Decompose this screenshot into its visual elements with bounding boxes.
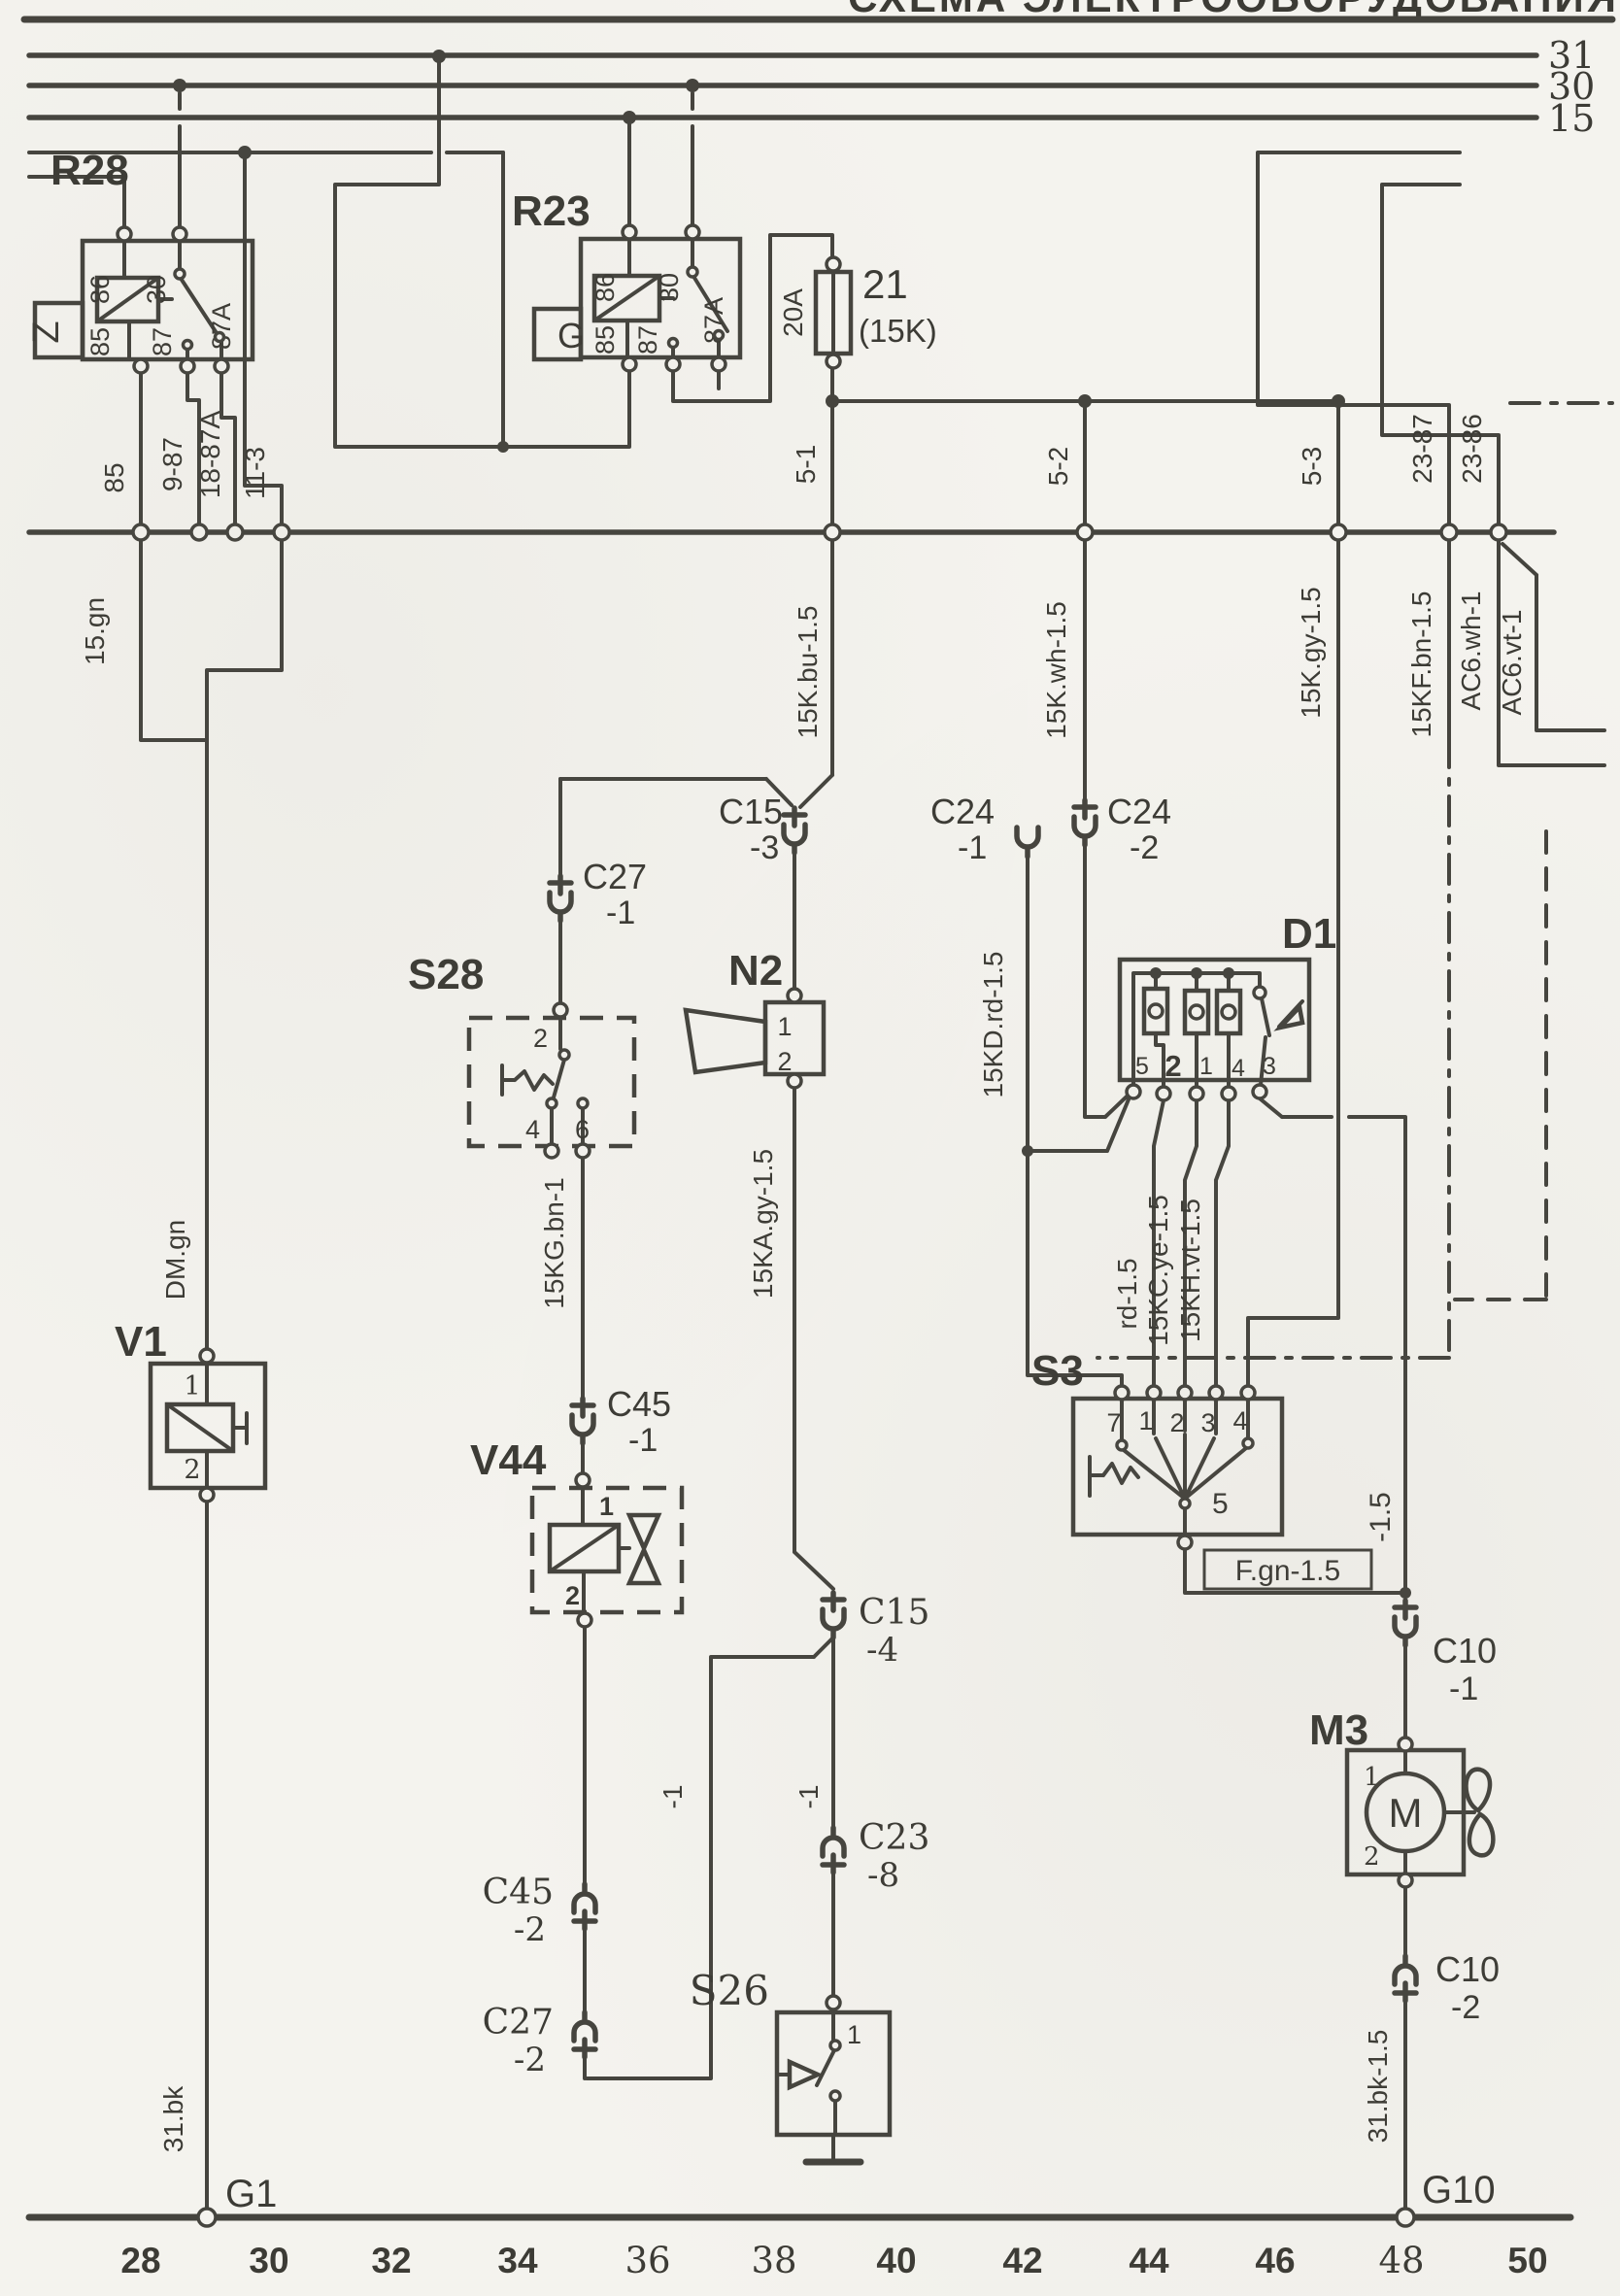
connector-c15-4 bbox=[823, 1593, 844, 1638]
connector-c45-2 bbox=[574, 1884, 595, 1929]
relay-r23: R23 G 86 30 85 87 87A bbox=[512, 187, 740, 359]
wire-rd: rd-1.5 bbox=[1112, 1258, 1142, 1329]
label-11-3: 11-3 bbox=[240, 447, 270, 499]
bus-lines: 31 30 15 bbox=[29, 34, 1595, 140]
scale-48: 48 bbox=[1378, 2240, 1424, 2281]
r23-label: R23 bbox=[512, 187, 591, 235]
r28-87: 87 bbox=[148, 327, 177, 356]
r28-86: 86 bbox=[85, 275, 115, 304]
r28-tag: Z bbox=[26, 321, 67, 343]
m3-motor-letter: M bbox=[1389, 1790, 1423, 1836]
d1-arrow-icon bbox=[1280, 1007, 1302, 1028]
relay-r28: R28 Z 86 30 85 87 87A bbox=[26, 147, 253, 359]
wire-dm-gn: DM.gn bbox=[160, 1220, 190, 1300]
fuse-21: 20A 21 (15K) bbox=[778, 261, 937, 354]
v1-2: 2 bbox=[184, 1455, 200, 1485]
label-23-86: 23-86 bbox=[1457, 414, 1487, 484]
c23-8-label: C23 bbox=[859, 1818, 929, 1858]
fgn-label-box: F.gn-1.5 bbox=[1204, 1550, 1371, 1589]
wire-neg-1-left: -1 bbox=[658, 1785, 688, 1809]
v44-1: 1 bbox=[599, 1492, 614, 1521]
v44-2: 2 bbox=[565, 1581, 580, 1610]
wire-fgn: F.gn-1.5 bbox=[1235, 1555, 1340, 1587]
scale-34: 34 bbox=[497, 2241, 538, 2280]
fuse-label: 21 bbox=[862, 261, 908, 307]
wire-labels: DM.gn 31.bk 31.bk-1.5 15KG.bn-1 15KA.gy-… bbox=[158, 952, 1397, 2153]
connector-c23-8 bbox=[823, 1828, 844, 1873]
c24-2-label: C24 bbox=[1107, 792, 1171, 831]
c10-1-label: C10 bbox=[1433, 1631, 1497, 1671]
m3-1: 1 bbox=[1364, 1763, 1380, 1792]
s28-2: 2 bbox=[533, 1024, 548, 1053]
s3-3: 3 bbox=[1200, 1408, 1215, 1437]
c45-2-pin: -2 bbox=[514, 1910, 546, 1949]
connector-c24-2 bbox=[1074, 800, 1096, 845]
d1-3: 3 bbox=[1263, 1053, 1276, 1080]
ground-rail: G1 G10 bbox=[29, 2169, 1570, 2226]
n2-box bbox=[765, 1002, 824, 1074]
wire-neg-1-right: -1 bbox=[793, 1785, 824, 1809]
connector-c10-1 bbox=[1395, 1601, 1416, 1645]
m3-label: M3 bbox=[1309, 1706, 1368, 1754]
g1-terminal bbox=[198, 2209, 216, 2226]
c15-4-pin: -4 bbox=[866, 1631, 898, 1670]
label-9-87: 9-87 bbox=[157, 437, 187, 491]
coordinate-scale: 28 30 32 34 36 38 40 42 44 46 48 50 bbox=[120, 2240, 1547, 2281]
wiring-diagram-page: СХЕМА ЭЛЕКТРООБОРУДОВАНИЯ 31 30 15 R28 Z… bbox=[0, 0, 1620, 2296]
wire-ac6-wh: AC6.wh-1 bbox=[1456, 591, 1486, 711]
c27-2-pin: -2 bbox=[514, 2041, 546, 2079]
schematic-canvas: СХЕМА ЭЛЕКТРООБОРУДОВАНИЯ 31 30 15 R28 Z… bbox=[0, 0, 1620, 2296]
connector-c15-3 bbox=[784, 808, 805, 853]
c45-2-label: C45 bbox=[483, 1873, 554, 1912]
wire-15k-wh: 15K.wh-1.5 bbox=[1041, 601, 1071, 739]
c15-4-label: C15 bbox=[859, 1593, 929, 1633]
switch-s28: S28 2 4 6 bbox=[408, 951, 634, 1146]
wire-31bk-15: 31.bk-1.5 bbox=[1363, 2030, 1393, 2144]
r23-86: 86 bbox=[591, 273, 620, 302]
d1-label: D1 bbox=[1282, 910, 1336, 958]
n2-horn-symbol bbox=[686, 1010, 765, 1072]
scale-42: 42 bbox=[1002, 2241, 1042, 2280]
d1-1: 1 bbox=[1199, 1053, 1213, 1080]
connector-c27-2 bbox=[574, 2012, 595, 2057]
s3-4: 4 bbox=[1232, 1406, 1247, 1435]
m3-2: 2 bbox=[1364, 1842, 1380, 1872]
c24-1-pin: -1 bbox=[958, 829, 987, 866]
fuse-sub-label: (15K) bbox=[859, 313, 937, 349]
label-5-3: 5-3 bbox=[1297, 447, 1327, 486]
scale-30: 30 bbox=[249, 2241, 288, 2280]
v44-valve-icon bbox=[629, 1515, 658, 1583]
s28-4: 4 bbox=[525, 1115, 540, 1144]
g10-label: G10 bbox=[1422, 2169, 1496, 2212]
valve-v44: V44 1 2 bbox=[470, 1436, 682, 1612]
fuse-rating: 20A bbox=[778, 288, 808, 337]
r28-label: R28 bbox=[51, 147, 129, 194]
connector-c27-1 bbox=[550, 876, 571, 921]
wire-ac6-vt: AC6.vt-1 bbox=[1497, 610, 1527, 716]
c27-2-label: C27 bbox=[483, 2003, 554, 2043]
module-d1: D1 5 2 1 4 3 bbox=[1120, 910, 1336, 1087]
connector-c24-1 bbox=[1017, 827, 1038, 857]
c10-1-pin: -1 bbox=[1449, 1671, 1478, 1707]
c27-1-pin: -1 bbox=[606, 895, 635, 931]
wire-15k-bu: 15K.bu-1.5 bbox=[793, 606, 823, 739]
r23-85: 85 bbox=[591, 325, 620, 355]
label-23-87: 23-87 bbox=[1407, 414, 1437, 484]
c45-1-pin: -1 bbox=[628, 1422, 658, 1459]
v44-label: V44 bbox=[470, 1436, 547, 1484]
label-85: 85 bbox=[99, 462, 129, 492]
g1-label: G1 bbox=[225, 2173, 277, 2215]
c10-2-pin: -2 bbox=[1451, 1989, 1480, 2026]
s3-5: 5 bbox=[1212, 1488, 1229, 1520]
r28-30: 30 bbox=[142, 275, 171, 304]
r23-tag: G bbox=[557, 316, 585, 355]
connector-c10-2 bbox=[1395, 1956, 1416, 2001]
c15-3-pin: -3 bbox=[750, 829, 779, 866]
scale-28: 28 bbox=[120, 2241, 160, 2280]
label-5-2: 5-2 bbox=[1043, 447, 1073, 486]
wiring-r23-fuse bbox=[335, 56, 1338, 524]
boundary-dashed bbox=[1455, 831, 1546, 1300]
wire-15k-gy: 15K.gy-1.5 bbox=[1296, 587, 1326, 718]
s3-label: S3 bbox=[1031, 1347, 1084, 1395]
scale-44: 44 bbox=[1129, 2241, 1169, 2280]
wiring-left bbox=[29, 93, 503, 2209]
s3-7: 7 bbox=[1106, 1408, 1121, 1437]
valve-v1: V1 1 2 bbox=[115, 1318, 265, 1488]
s28-6: 6 bbox=[575, 1115, 590, 1144]
v1-label: V1 bbox=[115, 1318, 167, 1366]
wire-15kg: 15KG.bn-1 bbox=[539, 1177, 569, 1308]
junction-bus: 85 9-87 18-87A 11-3 5-1 5-2 5-3 23-87 23… bbox=[29, 411, 1554, 739]
s3-1: 1 bbox=[1138, 1406, 1153, 1435]
s26-1: 1 bbox=[847, 2020, 861, 2049]
wiring bbox=[29, 56, 1612, 2209]
r28-85: 85 bbox=[85, 327, 115, 356]
connector-c45-1 bbox=[572, 1399, 593, 1443]
r23-87: 87 bbox=[633, 325, 662, 355]
terminal-circles bbox=[118, 225, 1506, 2101]
s26-internals bbox=[777, 2012, 835, 2133]
v1-1: 1 bbox=[184, 1371, 200, 1401]
s26-arrow-icon bbox=[790, 2062, 818, 2087]
wire-31bk: 31.bk bbox=[158, 2085, 188, 2152]
horn-n2: N2 1 2 bbox=[686, 947, 824, 1076]
scale-50: 50 bbox=[1507, 2241, 1547, 2280]
bus-15-label: 15 bbox=[1548, 97, 1595, 140]
label-18-87a: 18-87A bbox=[195, 411, 225, 499]
s28-internals bbox=[502, 1060, 583, 1144]
d1-5: 5 bbox=[1135, 1053, 1149, 1080]
switch-s26: S26 1 bbox=[690, 1967, 890, 2135]
wire-15kh: 15KH.vt-1.5 bbox=[1175, 1199, 1205, 1342]
wire-15kd: 15KD.rd-1.5 bbox=[978, 952, 1008, 1098]
scale-38: 38 bbox=[751, 2240, 796, 2281]
n2-1: 1 bbox=[777, 1012, 792, 1041]
c24-2-pin: -2 bbox=[1130, 829, 1159, 866]
d1-4: 4 bbox=[1232, 1055, 1245, 1082]
c24-1-label: C24 bbox=[930, 792, 995, 831]
scale-46: 46 bbox=[1255, 2241, 1295, 2280]
c23-8-pin: -8 bbox=[867, 1856, 899, 1895]
c45-1-label: C45 bbox=[607, 1384, 671, 1424]
n2-label: N2 bbox=[728, 947, 783, 995]
wiring-center-chain bbox=[560, 540, 833, 2162]
g10-terminal bbox=[1397, 2209, 1414, 2226]
scale-32: 32 bbox=[371, 2241, 411, 2280]
s3-2: 2 bbox=[1169, 1408, 1184, 1437]
label-5-1: 5-1 bbox=[791, 445, 821, 484]
s26-label: S26 bbox=[690, 1967, 769, 2014]
r23-30: 30 bbox=[655, 273, 684, 302]
c10-2-label: C10 bbox=[1435, 1949, 1500, 1989]
c15-3-label: C15 bbox=[719, 792, 783, 831]
motor-m3: M3 M 1 2 bbox=[1309, 1706, 1493, 1874]
wiring-right-chains bbox=[1028, 540, 1405, 2209]
d1-2: 2 bbox=[1164, 1049, 1181, 1083]
s28-label: S28 bbox=[408, 951, 484, 998]
scale-36: 36 bbox=[624, 2240, 670, 2281]
wire-15gn: 15.gn bbox=[80, 597, 110, 665]
wire-neg-15: -1.5 bbox=[1365, 1492, 1397, 1542]
wire-15ka: 15KA.gy-1.5 bbox=[748, 1149, 778, 1299]
wire-15kf-bn: 15KF.bn-1.5 bbox=[1406, 591, 1436, 738]
wire-15kc: 15KC.ye-1.5 bbox=[1143, 1195, 1173, 1346]
scale-40: 40 bbox=[876, 2241, 916, 2280]
c27-1-label: C27 bbox=[583, 857, 647, 896]
n2-2: 2 bbox=[777, 1047, 792, 1076]
